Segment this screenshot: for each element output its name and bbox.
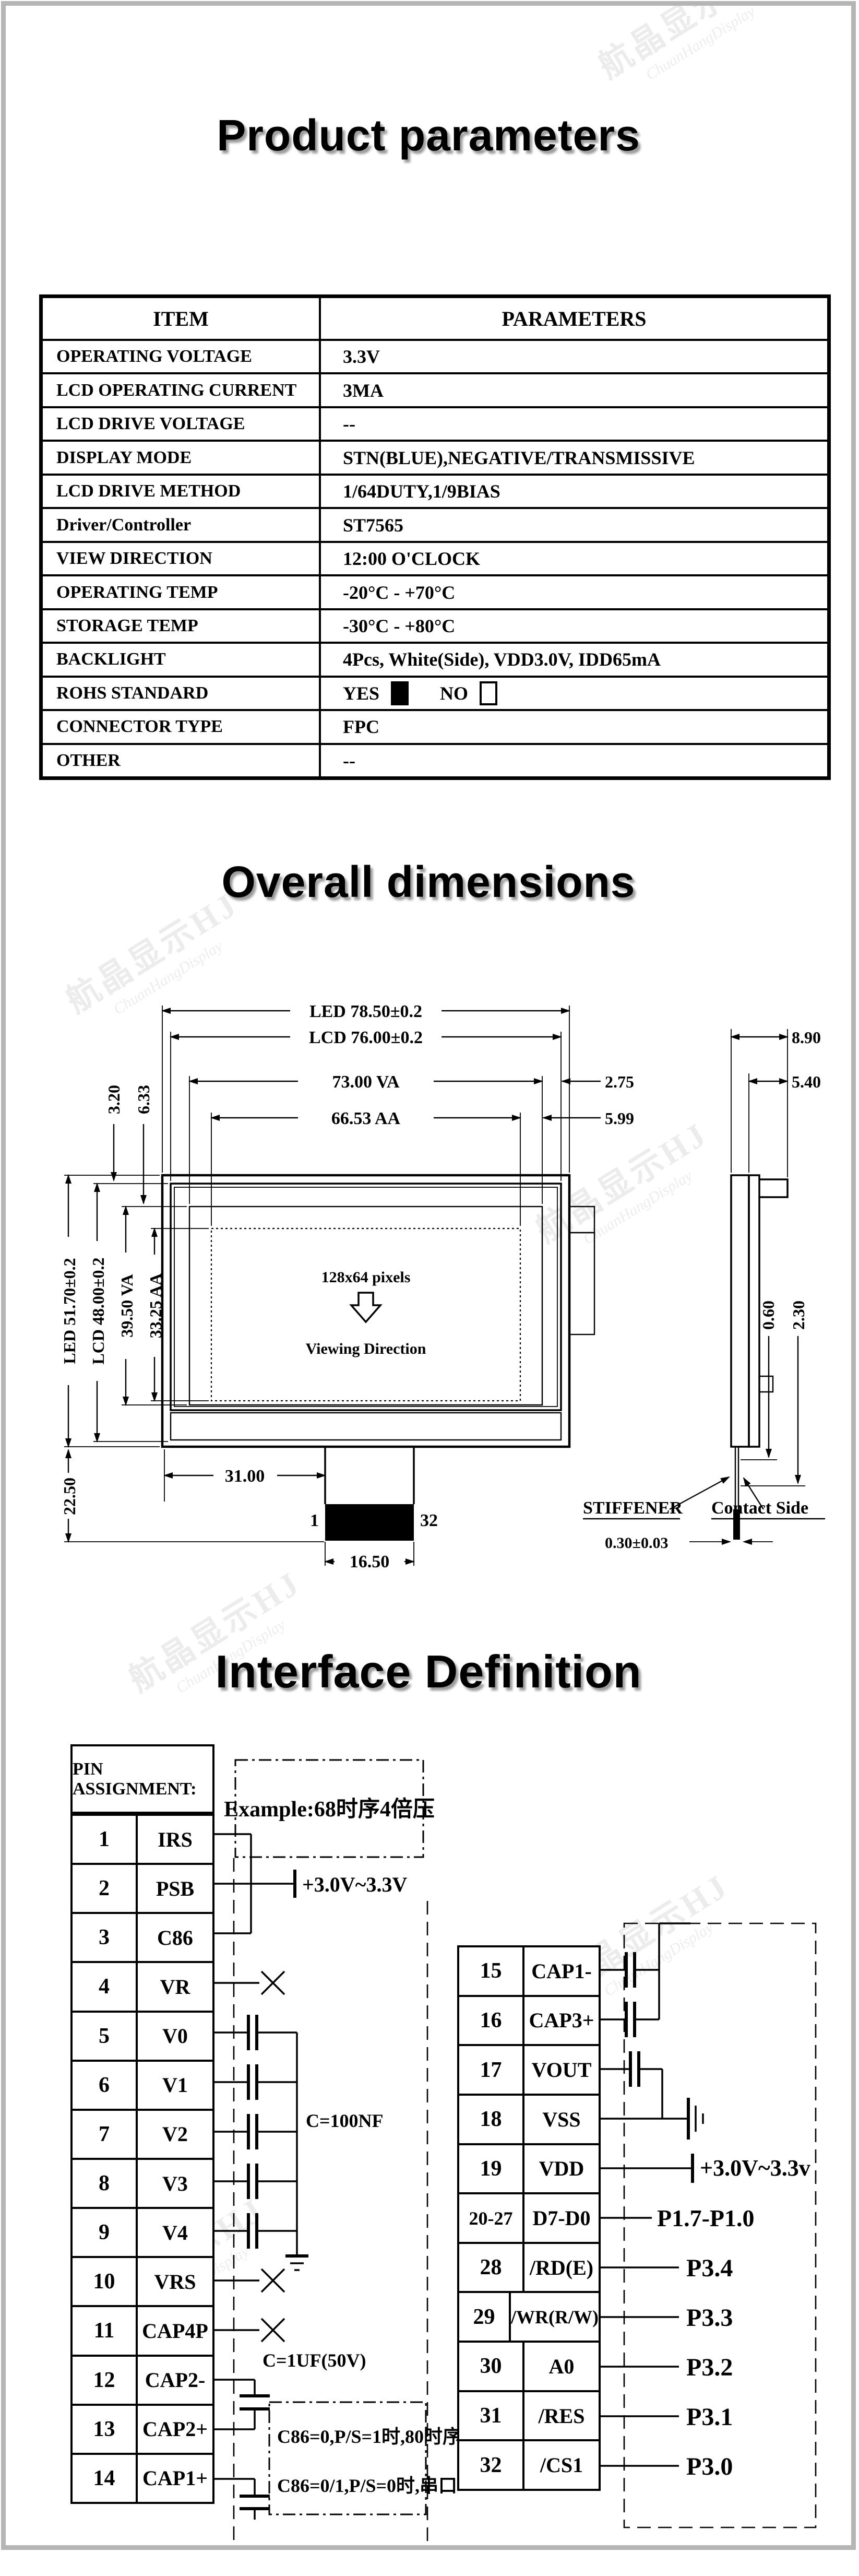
pin-number: 8 (73, 2160, 138, 2207)
pin-number: 6 (73, 2062, 138, 2109)
dim-fpc-thickness: 0.30±0.03 (605, 1534, 668, 1552)
row-item: LCD DRIVE VOLTAGE (43, 408, 321, 440)
table-row: STORAGE TEMP-30°C - +80°C (43, 608, 827, 642)
side-bottom-notch (759, 1376, 773, 1392)
dim-connector-offset: 31.00 (225, 1467, 265, 1486)
table-row: OPERATING TEMP-20°C - +70°C (43, 574, 827, 608)
pin-number: 29 (459, 2293, 511, 2341)
pin-number: 31 (459, 2392, 524, 2440)
pin-name: IRS (138, 1816, 212, 1863)
pin-row: 11CAP4P (73, 2305, 212, 2354)
pin-assignment-header: PIN ASSIGNMENT: (73, 1746, 212, 1814)
dim-connector-width: 16.50 (350, 1552, 390, 1569)
row-value: -- (321, 408, 827, 440)
section-title-interface-definition: Interface Definition (6, 1645, 851, 1698)
front-view: 128x64 pixels Viewing Direction 1 32 (162, 1175, 594, 1541)
pin-number: 15 (459, 1947, 524, 1995)
checkbox-filled-icon (391, 681, 409, 705)
dim-lcd-width: LCD 76.00±0.2 (309, 1028, 423, 1047)
table-row: LCD DRIVE METHOD1/64DUTY,1/9BIAS (43, 474, 827, 507)
datasheet-page: 航晶显示HJChuanHangDisplay 航晶显示HJChuanHangDi… (1, 1, 856, 2550)
capacitor-icon (601, 2051, 662, 2119)
cap-value-note-1: C=100NF (306, 2110, 384, 2131)
pin-row: 7V2 (73, 2109, 212, 2158)
mcu-port-label: P3.0 (686, 2453, 733, 2480)
row-value: ST7565 (321, 509, 827, 540)
row-item: DISPLAY MODE (43, 442, 321, 473)
section-title-overall-dimensions: Overall dimensions (6, 857, 851, 907)
pin-name: V2 (138, 2111, 212, 2158)
pin-row: 18VSS (459, 2094, 599, 2143)
dim-top-margin-1: 3.20 (104, 1085, 123, 1114)
active-area-outline (211, 1228, 520, 1401)
pin-name: VRS (138, 2258, 212, 2305)
dim-led-height: LED 51.70±0.2 (60, 1258, 79, 1364)
table-row: OTHER-- (43, 743, 827, 776)
pin-number: 5 (73, 2013, 138, 2060)
pin-name: V1 (138, 2062, 212, 2109)
dim-va-height: 39.50 VA (117, 1274, 136, 1338)
row-value: 4Pcs, White(Side), VDD3.0V, IDD65mA (321, 644, 827, 675)
led-outline (162, 1175, 569, 1447)
pin-name: CAP1- (524, 1947, 599, 1995)
dim-va-width: 73.00 VA (332, 1072, 400, 1092)
pin-1-label: 1 (310, 1511, 319, 1530)
mcu-port-label: P1.7-P1.0 (657, 2205, 755, 2231)
pin-number: 18 (459, 2096, 524, 2143)
row-item: ROHS STANDARD (43, 678, 321, 709)
table-row: LCD OPERATING CURRENT3MA (43, 372, 827, 406)
table-row: Driver/ControllerST7565 (43, 507, 827, 540)
pin-number: 17 (459, 2046, 524, 2094)
supply-left-label: +3.0V~3.3V (302, 1873, 407, 1896)
row-item: OPERATING TEMP (43, 576, 321, 608)
pin-row: 12CAP2- (73, 2355, 212, 2404)
row-value: STN(BLUE),NEGATIVE/TRANSMISSIVE (321, 442, 827, 473)
pin-row: 3C86 (73, 1912, 212, 1961)
pin-number: 1 (73, 1816, 138, 1863)
pin-number: 13 (73, 2406, 138, 2453)
dim-va-aa-gap: 5.99 (605, 1109, 634, 1128)
pin-name: VSS (524, 2096, 599, 2143)
dim-led-width: LED 78.50±0.2 (309, 1002, 422, 1021)
stiffener-hatch (569, 1233, 594, 1334)
header-item: ITEM (43, 298, 321, 339)
pin-row: 1IRS (73, 1814, 212, 1863)
pin-name: CAP2- (138, 2357, 212, 2404)
pin-number: 2 (73, 1865, 138, 1912)
pin-32-label: 32 (420, 1511, 438, 1530)
mode-note-box (269, 2402, 426, 2514)
pin-name: CAP2+ (138, 2406, 212, 2453)
right-wiring: +3.0V~3.3v P1.7-P1.0 P3.4 P3.3 P3.2 P3.1… (601, 1923, 810, 2480)
pin-name: CAP1+ (138, 2455, 212, 2502)
no-connect-x-icon (261, 2319, 284, 2342)
pin-row: 30A0 (459, 2341, 599, 2390)
watermark-text: ChuanHangDisplay (613, 1, 788, 102)
pin-number: 11 (73, 2307, 138, 2354)
pin-number: 28 (459, 2244, 524, 2291)
supply-right-label: +3.0V~3.3v (700, 2155, 810, 2181)
pin-name: C86 (138, 1914, 212, 1961)
pin-number: 14 (73, 2455, 138, 2502)
example-note-label: Example:68时序4倍压 (224, 1797, 435, 1822)
pin-number: 4 (73, 1963, 138, 2010)
watermark-text: 航晶显示HJ (588, 1, 779, 88)
pin-row: 32/CS1 (459, 2439, 599, 2489)
capacitor-icon (601, 1923, 690, 1988)
pin-name: V3 (138, 2160, 212, 2207)
cap-value-note-2: C=1UF(50V) (263, 2350, 366, 2371)
pin-name: /CS1 (524, 2441, 599, 2489)
capacitor-icon (214, 2015, 297, 2249)
mcu-port-label: P3.3 (686, 2304, 733, 2332)
rohs-yes-label: YES (343, 682, 379, 704)
pin-name: /RD(E) (524, 2244, 599, 2291)
pin-name: V0 (138, 2013, 212, 2060)
row-value: 1/64DUTY,1/9BIAS (321, 476, 827, 507)
table-row-rohs: ROHS STANDARD YES NO (43, 676, 827, 709)
stiffener-label: STIFFENER (583, 1498, 683, 1518)
row-value: FPC (321, 711, 827, 742)
side-top-tab (759, 1179, 788, 1197)
pin-row: 8V3 (73, 2158, 212, 2207)
dim-tail-height: 22.50 (60, 1478, 79, 1515)
pin-row: 20-27D7-D0 (459, 2192, 599, 2242)
side-lcd-slab (731, 1175, 749, 1447)
dim-top-margin-2: 6.33 (134, 1085, 153, 1114)
row-item: VIEW DIRECTION (43, 543, 321, 574)
capacitor-icon (214, 2380, 270, 2429)
pin-name: V4 (138, 2209, 212, 2256)
side-view: 8.90 5.40 0.60 2.30 STIFFENER Contact Si… (583, 1028, 825, 1552)
capacitor-icon (214, 2479, 270, 2520)
pin-number: 32 (459, 2441, 524, 2489)
left-wiring: +3.0V~3.3V (214, 1834, 407, 2520)
pin-row: 13CAP2+ (73, 2404, 212, 2453)
no-connect-x-icon (261, 1971, 284, 1994)
row-item: Driver/Controller (43, 509, 321, 540)
dim-lcd-va-gap: 2.75 (605, 1072, 634, 1091)
table-row: CONNECTOR TYPEFPC (43, 709, 827, 742)
row-item: LCD DRIVE METHOD (43, 476, 321, 507)
table-row: VIEW DIRECTION12:00 O'CLOCK (43, 541, 827, 574)
dim-aa-height: 33.25 AA (146, 1273, 165, 1338)
contact-side-label: Contact Side (711, 1498, 808, 1518)
mcu-port-label: P3.4 (686, 2254, 733, 2282)
pin-table-left: PIN ASSIGNMENT: 1IRS 2PSB 3C86 4VR 5V0 6… (70, 1744, 214, 2504)
pin-name: /RES (524, 2392, 599, 2440)
pin-name: VDD (524, 2145, 599, 2193)
mcu-port-label: P3.1 (686, 2403, 733, 2431)
backlight-hatch (171, 1413, 561, 1440)
pin-row: 31/RES (459, 2390, 599, 2440)
pixel-count-label: 128x64 pixels (321, 1269, 411, 1286)
side-pcb-slab (749, 1175, 759, 1447)
table-row: OPERATING VOLTAGE3.3V (43, 339, 827, 372)
viewing-direction-label: Viewing Direction (306, 1340, 426, 1357)
pin-number: 9 (73, 2209, 138, 2256)
pin-number: 7 (73, 2111, 138, 2158)
row-value-rohs: YES NO (321, 678, 827, 709)
row-value: 12:00 O'CLOCK (321, 543, 827, 574)
pin-name: CAP4P (138, 2307, 212, 2354)
section-title-product-parameters: Product parameters (6, 110, 851, 161)
pin-name: PSB (138, 1865, 212, 1912)
viewing-area-outline (189, 1207, 542, 1405)
dim-side-thickness-pcb: 5.40 (792, 1072, 821, 1091)
pin-row: 6V1 (73, 2060, 212, 2109)
pin-row: 29/WR(R/W) (459, 2291, 599, 2341)
pin-row: 4VR (73, 1961, 212, 2010)
pin-number: 30 (459, 2343, 524, 2390)
watermark: 航晶显示HJChuanHangDisplay (588, 1, 788, 102)
pin-row: 2PSB (73, 1863, 212, 1912)
header-parameters: PARAMETERS (321, 298, 827, 339)
pin-number: 16 (459, 1997, 524, 2045)
table-row: LCD DRIVE VOLTAGE-- (43, 406, 827, 440)
lcd-outline (171, 1184, 561, 1410)
pin-row: 28/RD(E) (459, 2242, 599, 2291)
pin-number: 19 (459, 2145, 524, 2193)
row-item: CONNECTOR TYPE (43, 711, 321, 742)
mode-note-1: C86=0,P/S=1时,80时序 (277, 2426, 461, 2447)
top-dimensions: LED 78.50±0.2 LCD 76.00±0.2 73.00 VA 66.… (162, 1000, 634, 1226)
pin-row: 14CAP1+ (73, 2453, 212, 2502)
row-value: 3MA (321, 374, 827, 406)
pin-row: 5V0 (73, 2011, 212, 2060)
row-item: LCD OPERATING CURRENT (43, 374, 321, 406)
row-value: -20°C - +70°C (321, 576, 827, 608)
pin-name: A0 (524, 2343, 599, 2390)
ground-icon (688, 2098, 703, 2140)
pin-row: 19VDD (459, 2143, 599, 2193)
checkbox-empty-icon (480, 681, 497, 705)
pin-number: 20-27 (459, 2194, 524, 2242)
fpc-connector (325, 1504, 414, 1541)
rohs-no-label: NO (440, 682, 468, 704)
pin-number: 10 (73, 2258, 138, 2305)
pin-name: CAP3+ (524, 1997, 599, 2045)
pin-row: 17VOUT (459, 2044, 599, 2094)
lcd-inner-outline (174, 1187, 557, 1407)
pin-row: 9V4 (73, 2207, 212, 2256)
row-item: OTHER (43, 745, 321, 776)
pin-number: 3 (73, 1914, 138, 1961)
row-item: OPERATING VOLTAGE (43, 341, 321, 372)
mode-note-2: C86=0/1,P/S=0时,串口 (277, 2475, 457, 2496)
fpc-tab (569, 1207, 594, 1233)
row-item: STORAGE TEMP (43, 610, 321, 642)
viewing-direction-arrow-icon (351, 1293, 380, 1322)
pin-name: /WR(R/W) (511, 2293, 599, 2341)
row-value: -- (321, 745, 827, 776)
row-value: -30°C - +80°C (321, 610, 827, 642)
no-connect-x-icon (261, 2269, 284, 2292)
pin-table-right: 15CAP1- 16CAP3+ 17VOUT 18VSS 19VDD 20-27… (457, 1945, 601, 2491)
table-row: BACKLIGHT4Pcs, White(Side), VDD3.0V, IDD… (43, 642, 827, 675)
dim-aa-width: 66.53 AA (331, 1109, 401, 1128)
row-value: 3.3V (321, 341, 827, 372)
capacitor-icon (601, 1970, 659, 2037)
pin-row: 10VRS (73, 2256, 212, 2305)
left-dimensions: LED 51.70±0.2 LCD 48.00±0.2 39.50 VA 33.… (60, 1085, 324, 1542)
pin-name: VR (138, 1963, 212, 2010)
dim-side-thickness-total: 8.90 (792, 1028, 821, 1047)
pin-name: VOUT (524, 2046, 599, 2094)
parameters-table: ITEM PARAMETERS OPERATING VOLTAGE3.3V LC… (39, 294, 831, 780)
dimension-drawing: 128x64 pixels Viewing Direction 1 32 LED… (6, 987, 856, 1569)
table-row: DISPLAY MODESTN(BLUE),NEGATIVE/TRANSMISS… (43, 440, 827, 473)
pin-name: D7-D0 (524, 2194, 599, 2242)
ground-icon (285, 2256, 308, 2270)
dim-lcd-height: LCD 48.00±0.2 (89, 1257, 108, 1364)
row-item: BACKLIGHT (43, 644, 321, 675)
dim-side-step-2: 2.30 (789, 1301, 808, 1330)
table-header-row: ITEM PARAMETERS (43, 298, 827, 339)
pin-number: 12 (73, 2357, 138, 2404)
pin-row: 16CAP3+ (459, 1995, 599, 2045)
pin-row: 15CAP1- (459, 1947, 599, 1995)
mcu-port-label: P3.2 (686, 2354, 733, 2381)
dim-side-step-1: 0.60 (759, 1301, 778, 1330)
